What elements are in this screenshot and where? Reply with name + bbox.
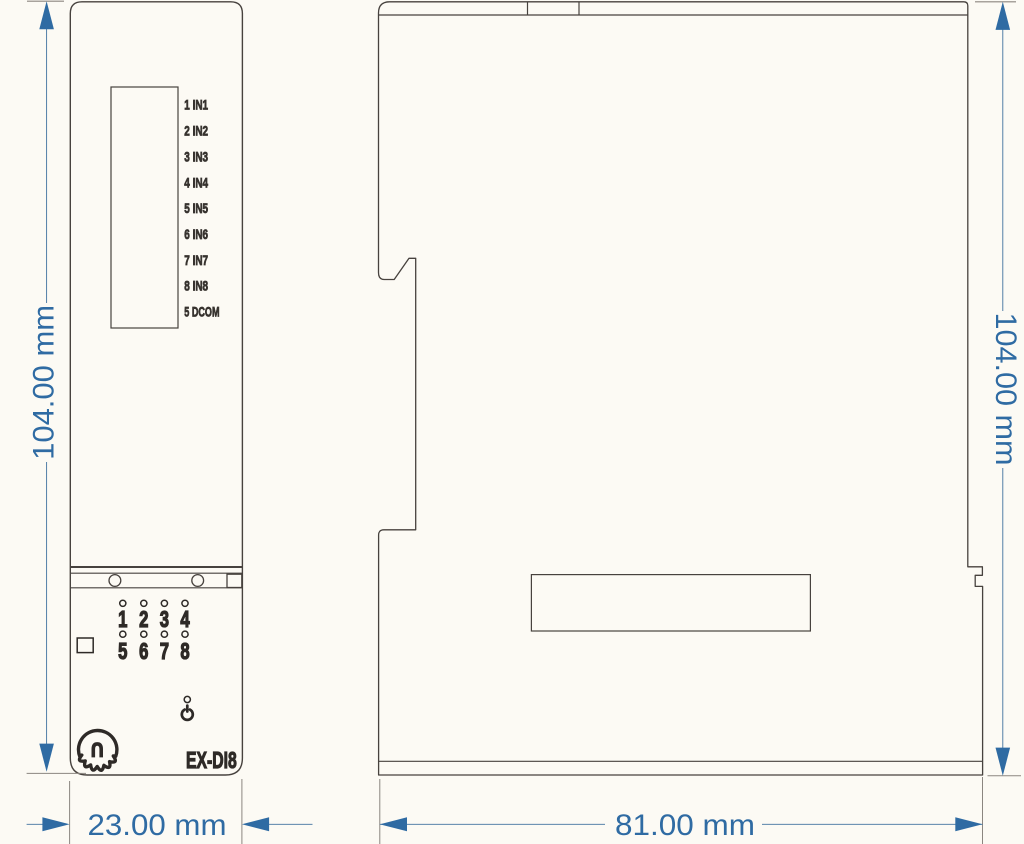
svg-text:3 IN3: 3 IN3 <box>184 148 208 164</box>
svg-text:7: 7 <box>160 640 169 665</box>
svg-text:1: 1 <box>118 607 127 632</box>
svg-text:8 IN8: 8 IN8 <box>184 278 208 294</box>
svg-text:5 IN5: 5 IN5 <box>184 200 208 216</box>
svg-text:6: 6 <box>139 640 148 665</box>
svg-text:5 DCOM: 5 DCOM <box>184 304 219 320</box>
svg-text:104.00 mm: 104.00 mm <box>28 305 61 460</box>
svg-text:104.00 mm: 104.00 mm <box>989 313 1022 466</box>
svg-text:EX-DI8: EX-DI8 <box>186 747 237 773</box>
svg-text:2 IN2: 2 IN2 <box>184 123 208 139</box>
svg-text:4: 4 <box>180 607 190 632</box>
svg-text:3: 3 <box>160 607 169 632</box>
svg-text:23.00 mm: 23.00 mm <box>88 809 227 842</box>
svg-text:8: 8 <box>180 640 189 665</box>
svg-text:7 IN7: 7 IN7 <box>184 252 208 268</box>
svg-text:5: 5 <box>118 640 127 665</box>
svg-text:2: 2 <box>139 607 148 632</box>
svg-text:6 IN6: 6 IN6 <box>184 226 208 242</box>
svg-text:1 IN1: 1 IN1 <box>184 97 208 113</box>
svg-text:81.00 mm: 81.00 mm <box>615 809 755 842</box>
svg-text:4 IN4: 4 IN4 <box>184 174 208 190</box>
